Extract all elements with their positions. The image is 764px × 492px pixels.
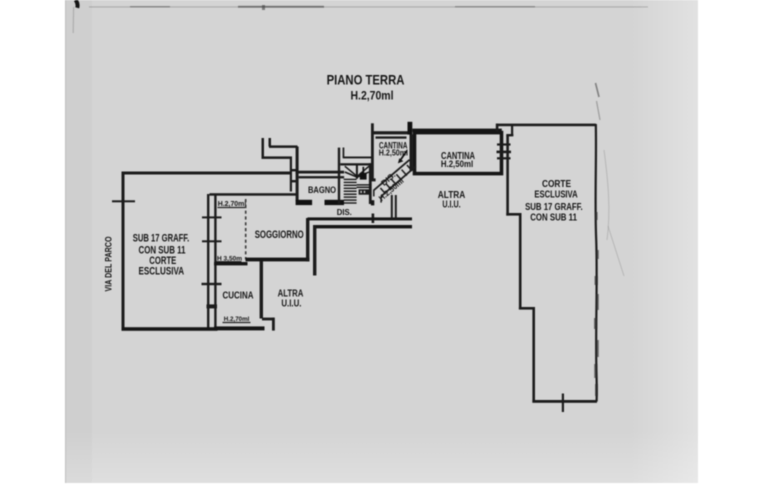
svg-text:SUB 17 GRAFF.: SUB 17 GRAFF.	[525, 202, 583, 213]
svg-text:SUB 17 GRAFF.: SUB 17 GRAFF.	[133, 233, 190, 245]
svg-text:H.2,50ml: H.2,50ml	[441, 159, 473, 169]
svg-text:CORTE: CORTE	[542, 179, 571, 190]
svg-text:VIA DEL PARCO: VIA DEL PARCO	[103, 236, 113, 291]
svg-text:BAGNO: BAGNO	[308, 185, 336, 195]
svg-text:CON SUB 11: CON SUB 11	[530, 212, 577, 223]
svg-text:CUCINA: CUCINA	[223, 290, 254, 301]
svg-text:DIS.: DIS.	[337, 208, 352, 217]
svg-text:H.2,70ml: H.2,70ml	[351, 89, 394, 103]
svg-text:U.I.U.: U.I.U.	[281, 299, 301, 310]
svg-text:ESCLUSIVA: ESCLUSIVA	[139, 265, 185, 277]
svg-text:ESCLUSIVA: ESCLUSIVA	[534, 190, 578, 201]
svg-text:U.I.U.: U.I.U.	[442, 200, 460, 211]
svg-text:SOGGIORNO: SOGGIORNO	[255, 229, 304, 241]
svg-text:PIANO TERRA: PIANO TERRA	[327, 73, 405, 88]
